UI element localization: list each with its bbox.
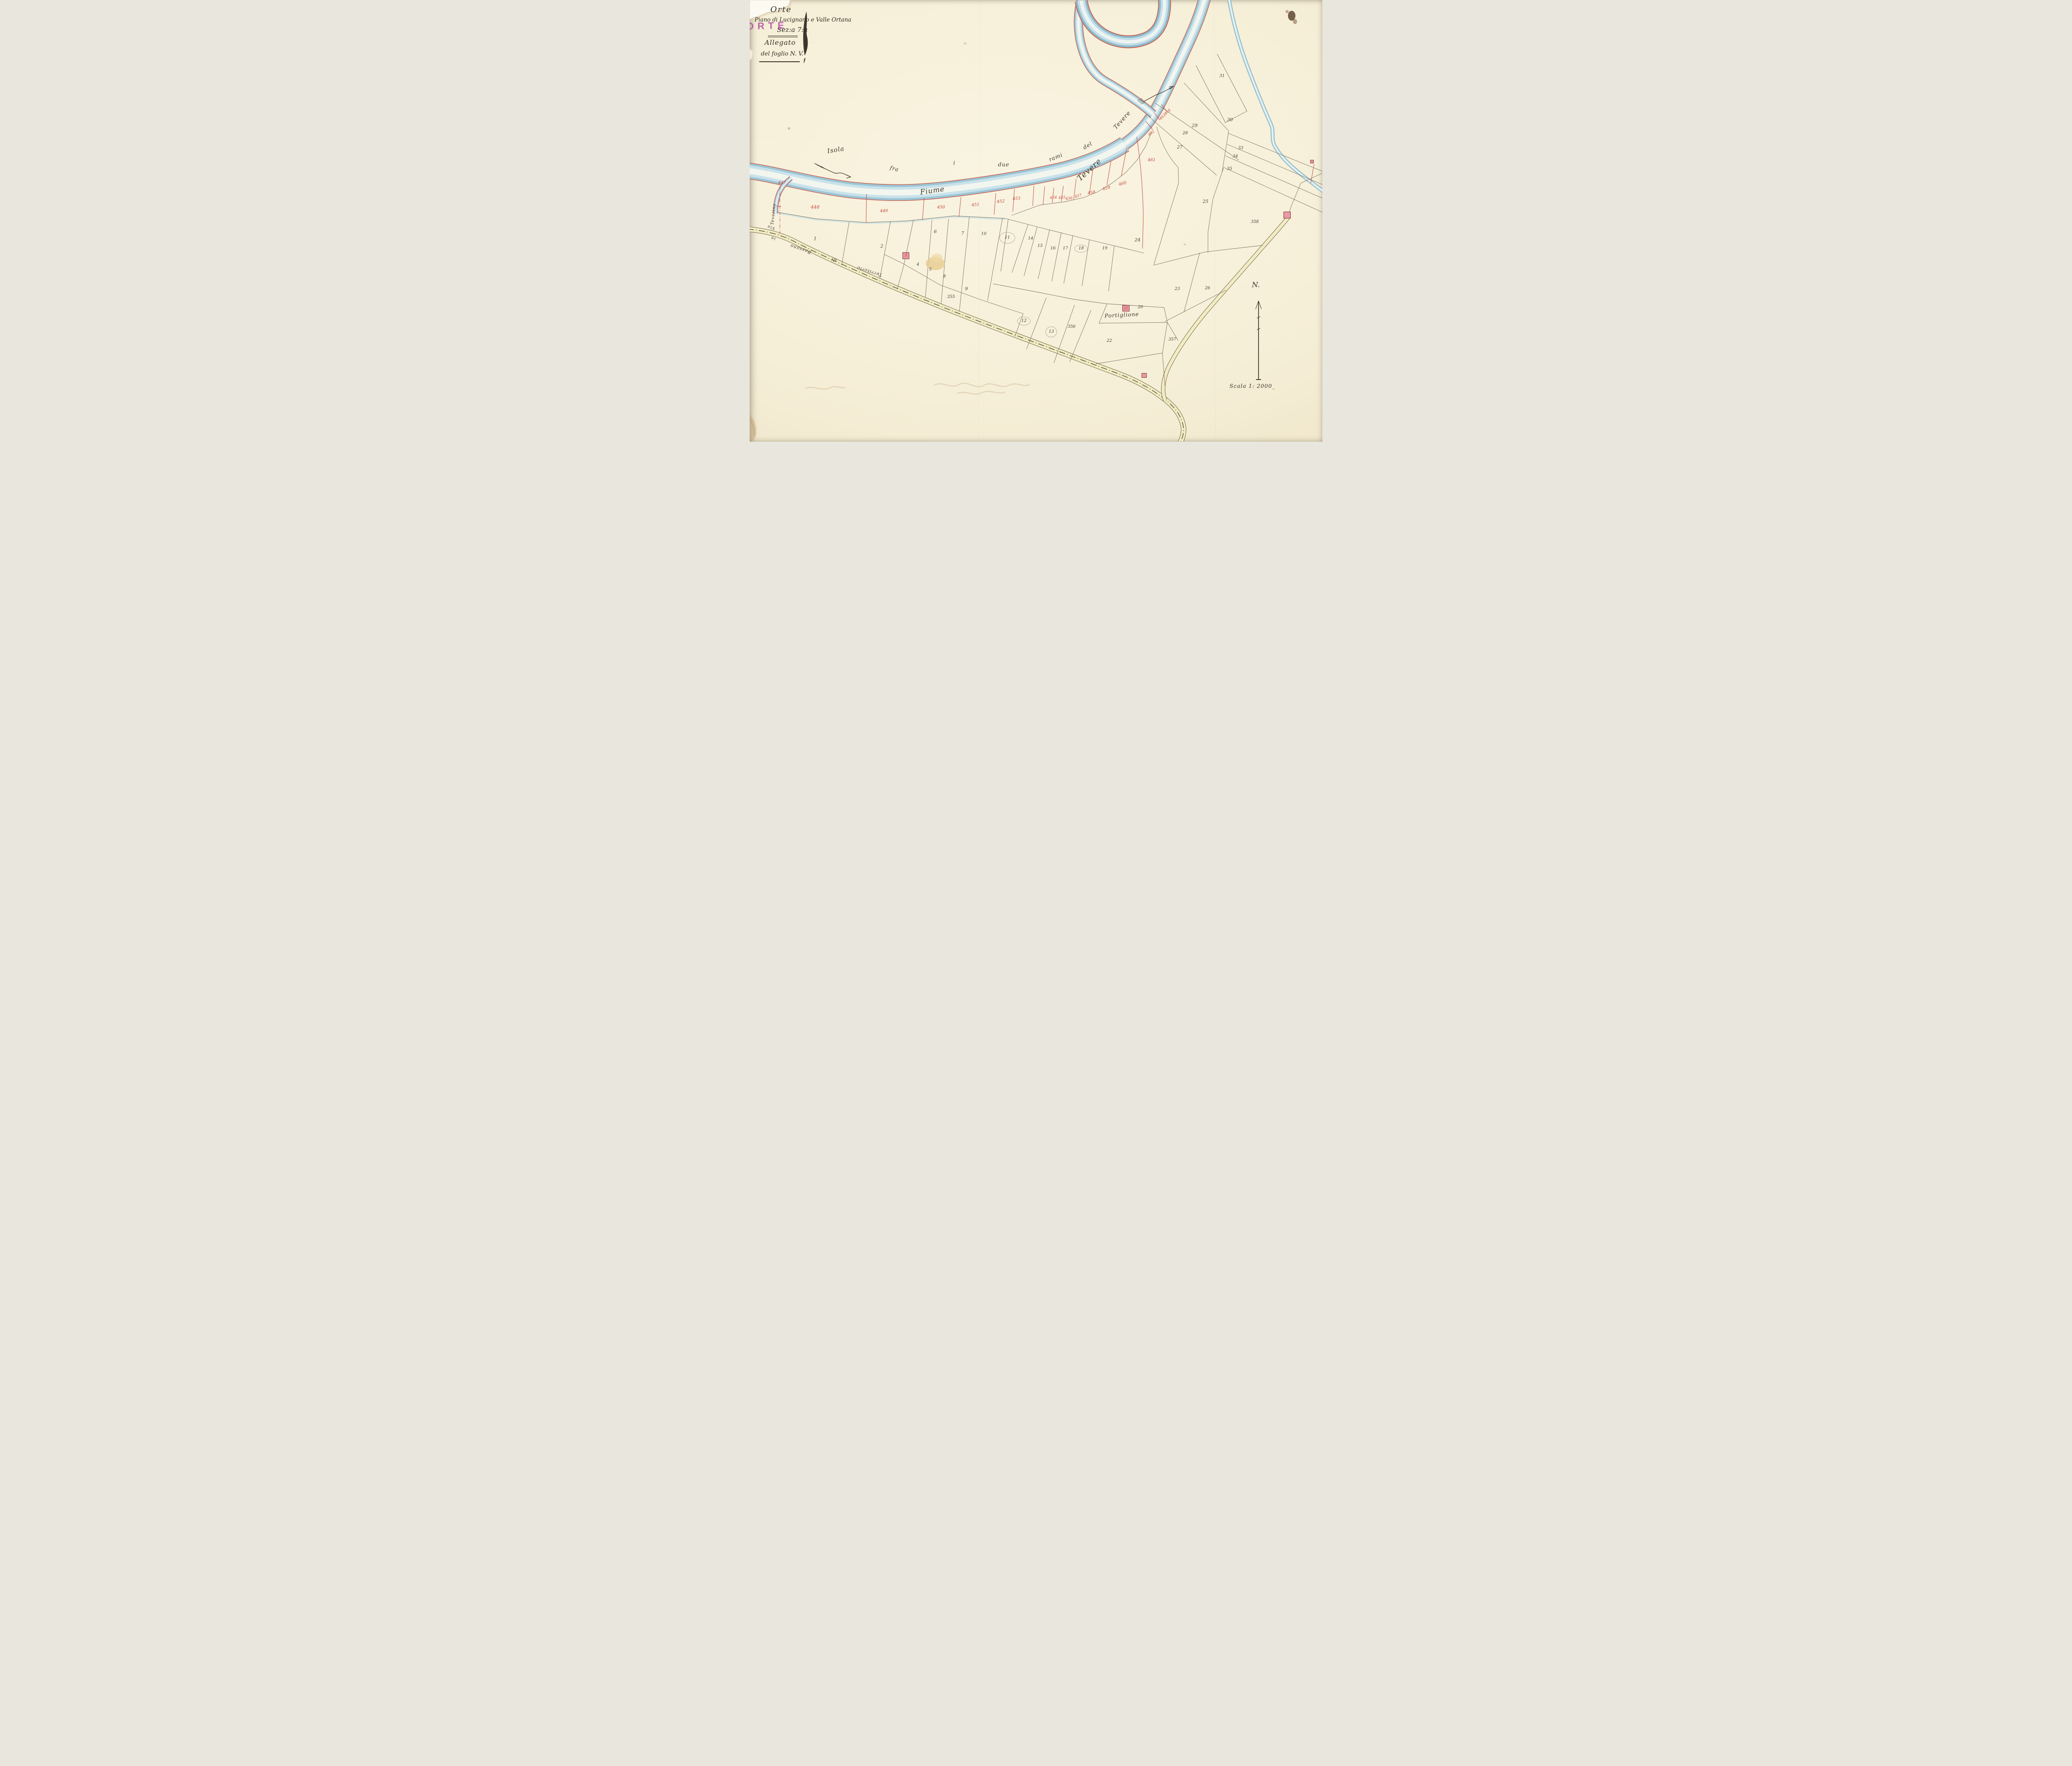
title-underline-1 bbox=[768, 36, 798, 36]
parcel-number-35: 35 bbox=[1227, 167, 1232, 171]
building-symbol bbox=[1310, 160, 1314, 163]
parcel-number-33: 33 bbox=[1238, 146, 1244, 150]
parcel-number-red-447: 447 bbox=[778, 181, 786, 185]
parcel-number-1: 1 bbox=[814, 237, 817, 241]
parcel-number-11: 11 bbox=[1005, 236, 1010, 240]
parcel-number-8: 8 bbox=[943, 275, 946, 279]
building-symbol bbox=[1284, 212, 1291, 218]
north-label: N. bbox=[1252, 281, 1260, 289]
parcel-number-red-448: 448 bbox=[811, 205, 820, 210]
parcel-number-30: 30 bbox=[1227, 118, 1233, 122]
label-fiume: Fiume bbox=[920, 186, 945, 196]
road-label-territorio: Territorio bbox=[856, 265, 883, 277]
parcel-number-29: 29 bbox=[1192, 123, 1198, 128]
parcel-number-9: 9 bbox=[965, 287, 968, 291]
parcel-number-red-452: 452 bbox=[997, 199, 1005, 204]
parcel-number-18: 18 bbox=[1079, 247, 1084, 251]
road-label-in: in bbox=[770, 235, 776, 240]
parcel-number-17: 17 bbox=[1063, 247, 1068, 251]
parcel-number-5: 5 bbox=[929, 268, 932, 272]
parcel-number-19: 19 bbox=[1102, 247, 1108, 251]
label-isola: Isola bbox=[827, 145, 845, 154]
parcel-number-14: 14 bbox=[1028, 237, 1034, 241]
building-parcel-3: 3 bbox=[903, 252, 909, 259]
parcel-number-13: 13 bbox=[1049, 330, 1054, 334]
label-i: i bbox=[953, 161, 955, 166]
parcel-number-red-459: 459 bbox=[1102, 186, 1111, 191]
parcel-number-27: 27 bbox=[1177, 145, 1183, 150]
parcel-number-red-457: 457 bbox=[1075, 194, 1082, 199]
parcel-number-26: 26 bbox=[1205, 286, 1210, 290]
parcel-number-34: 34 bbox=[1233, 155, 1238, 159]
title-underline-2 bbox=[768, 37, 798, 37]
parcel-number-357: 357 bbox=[1168, 338, 1176, 342]
road-label-bassano: Bassano bbox=[789, 243, 812, 255]
parcel-number-355: 355 bbox=[947, 295, 955, 299]
parcel-number-red-455: 455 bbox=[1058, 196, 1066, 200]
building-symbol bbox=[1142, 373, 1147, 378]
pencil-circle bbox=[1075, 245, 1088, 253]
label-tevere-small: Tevere bbox=[1113, 110, 1132, 130]
road-label-di: di bbox=[830, 257, 837, 263]
parcel-number-356: 356 bbox=[1067, 325, 1075, 329]
parcel-number-15: 15 bbox=[1038, 244, 1043, 248]
parcel-number-2: 2 bbox=[881, 244, 884, 249]
parcel-number-22: 22 bbox=[1107, 339, 1112, 343]
label-due: due bbox=[998, 162, 1009, 168]
parcel-number-red-449: 449 bbox=[880, 209, 888, 213]
pencil-circle bbox=[1000, 232, 1015, 244]
label-portiglione: Portiglione bbox=[1104, 312, 1139, 319]
title-underline-3 bbox=[759, 61, 800, 62]
north-scale-block: N. Scala 1: 2000_ bbox=[1226, 278, 1301, 398]
parcel-number-red-456: 456 bbox=[1065, 196, 1073, 201]
parcel-number-10: 10 bbox=[981, 232, 987, 236]
parcel-number-358: 358 bbox=[1251, 220, 1259, 224]
label-tevere-large: Tevere bbox=[1076, 157, 1103, 182]
parcel-number-12: 12 bbox=[1021, 319, 1027, 323]
parcel-number-7: 7 bbox=[961, 231, 964, 236]
title-block: Orte Piano di Lucignano e Valle Ortana S… bbox=[750, 0, 857, 73]
parcel-number-red-451: 451 bbox=[971, 203, 980, 208]
parcel-number-20: 20 bbox=[1138, 305, 1143, 310]
label-fra: fra bbox=[889, 165, 899, 173]
allegato-label: Allegato bbox=[765, 39, 796, 46]
parcel-number-red-464: 464 bbox=[1164, 109, 1172, 116]
label-teverina: Teverina bbox=[770, 203, 777, 225]
parcel-number-red-458: 458 bbox=[1087, 190, 1096, 196]
parcel-number-24: 24 bbox=[1135, 238, 1140, 242]
building-parcel-21: 21 bbox=[1123, 305, 1130, 312]
parcel-number-red-462: 462 bbox=[1148, 130, 1156, 137]
parcel-number-red-454: 454 bbox=[1050, 196, 1057, 200]
cadastral-map-sheet: IsolafraidueramidelTevereFiumeTeverePort… bbox=[750, 0, 1322, 442]
parcel-number-4: 4 bbox=[917, 263, 919, 267]
scale-label: Scala 1: 2000_ bbox=[1230, 383, 1275, 389]
parcel-number-28: 28 bbox=[1183, 131, 1188, 135]
parcel-number-red-450: 450 bbox=[937, 206, 945, 210]
foglio-label: del foglio N. V. bbox=[761, 51, 804, 57]
orte-stamp: ORTE bbox=[750, 20, 788, 32]
pencil-circle bbox=[1017, 317, 1031, 326]
parcel-number-16: 16 bbox=[1051, 247, 1056, 251]
map-title: Orte bbox=[770, 5, 792, 14]
parcel-number-23: 23 bbox=[1175, 287, 1180, 291]
parcel-number-red-460: 460 bbox=[1118, 181, 1127, 187]
label-rami: rami bbox=[1048, 152, 1064, 163]
parcel-number-6: 6 bbox=[934, 230, 937, 234]
parcel-number-25: 25 bbox=[1203, 199, 1208, 204]
parcel-number-31: 31 bbox=[1220, 74, 1225, 78]
pencil-circle bbox=[1046, 327, 1057, 337]
label-del: del bbox=[1082, 141, 1094, 151]
parcel-number-red-453: 453 bbox=[1012, 196, 1021, 201]
parcel-number-red-461: 461 bbox=[1147, 158, 1155, 162]
